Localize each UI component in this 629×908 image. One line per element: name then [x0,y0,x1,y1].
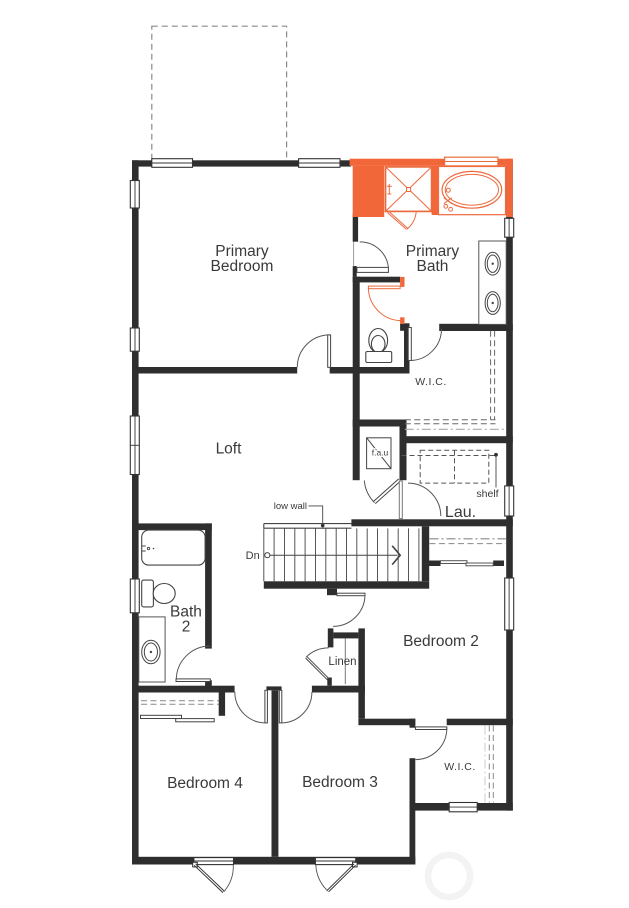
svg-text:W.I.C.: W.I.C. [444,761,476,773]
svg-text:2: 2 [182,619,191,636]
svg-text:low wall: low wall [274,501,307,512]
svg-text:Dn: Dn [246,550,260,562]
svg-text:W.I.C.: W.I.C. [415,376,447,388]
svg-text:Loft: Loft [216,441,243,458]
svg-text:Lau.: Lau. [445,504,476,521]
svg-text:Bedroom: Bedroom [211,258,274,275]
svg-text:Bedroom 4: Bedroom 4 [167,775,243,792]
svg-text:Bath: Bath [417,258,449,275]
svg-text:shelf: shelf [476,488,498,500]
svg-text:f.a.u: f.a.u [372,447,389,457]
svg-text:Bedroom 2: Bedroom 2 [403,633,479,650]
svg-text:Linen: Linen [328,656,356,668]
svg-text:Bedroom 3: Bedroom 3 [302,774,378,791]
